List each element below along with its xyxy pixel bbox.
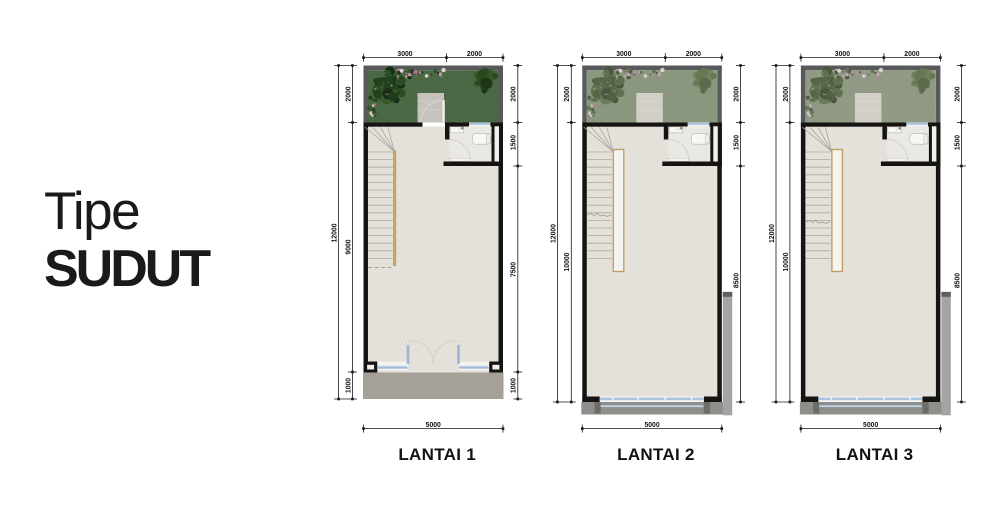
svg-text:1500: 1500: [731, 135, 740, 150]
svg-text:2000: 2000: [509, 86, 518, 101]
svg-text:8500: 8500: [952, 273, 961, 288]
svg-text:3000: 3000: [397, 49, 412, 58]
svg-text:2000: 2000: [904, 49, 919, 58]
svg-text:12000: 12000: [767, 224, 776, 243]
svg-text:12000: 12000: [548, 224, 557, 243]
svg-text:10000: 10000: [562, 253, 571, 272]
svg-text:LANTAI 1: LANTAI 1: [398, 445, 476, 464]
svg-text:3000: 3000: [616, 49, 631, 58]
svg-text:SUDUT: SUDUT: [44, 240, 211, 298]
svg-text:2000: 2000: [686, 49, 701, 58]
svg-text:5000: 5000: [863, 420, 878, 429]
svg-text:2000: 2000: [731, 86, 740, 101]
svg-text:2000: 2000: [467, 49, 482, 58]
svg-text:1500: 1500: [509, 135, 518, 150]
svg-text:2000: 2000: [781, 86, 790, 101]
svg-text:7500: 7500: [509, 262, 518, 277]
svg-text:8500: 8500: [731, 273, 740, 288]
svg-text:10000: 10000: [781, 253, 790, 272]
svg-text:LANTAI 3: LANTAI 3: [836, 445, 914, 464]
svg-text:1000: 1000: [343, 378, 352, 393]
svg-text:1500: 1500: [952, 135, 961, 150]
svg-text:5000: 5000: [644, 420, 659, 429]
svg-text:2000: 2000: [562, 86, 571, 101]
svg-text:2000: 2000: [952, 86, 961, 101]
svg-text:LANTAI 2: LANTAI 2: [617, 445, 695, 464]
svg-text:1000: 1000: [509, 378, 518, 393]
svg-text:2000: 2000: [343, 86, 352, 101]
svg-text:12000: 12000: [330, 224, 339, 243]
svg-text:Tipe: Tipe: [44, 182, 139, 241]
svg-text:5000: 5000: [426, 420, 441, 429]
svg-text:3000: 3000: [835, 49, 850, 58]
svg-text:9000: 9000: [343, 239, 352, 254]
